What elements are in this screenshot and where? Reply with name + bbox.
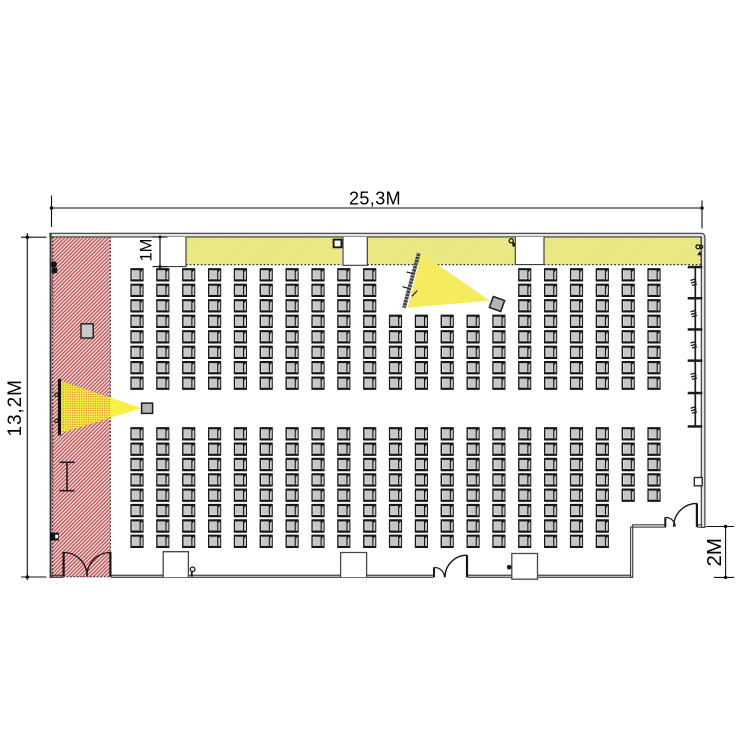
svg-text:1M: 1M: [138, 239, 156, 262]
svg-text:13,2M: 13,2M: [5, 379, 26, 436]
svg-text:2M: 2M: [703, 538, 726, 566]
svg-text:25,3M: 25,3M: [349, 189, 401, 209]
